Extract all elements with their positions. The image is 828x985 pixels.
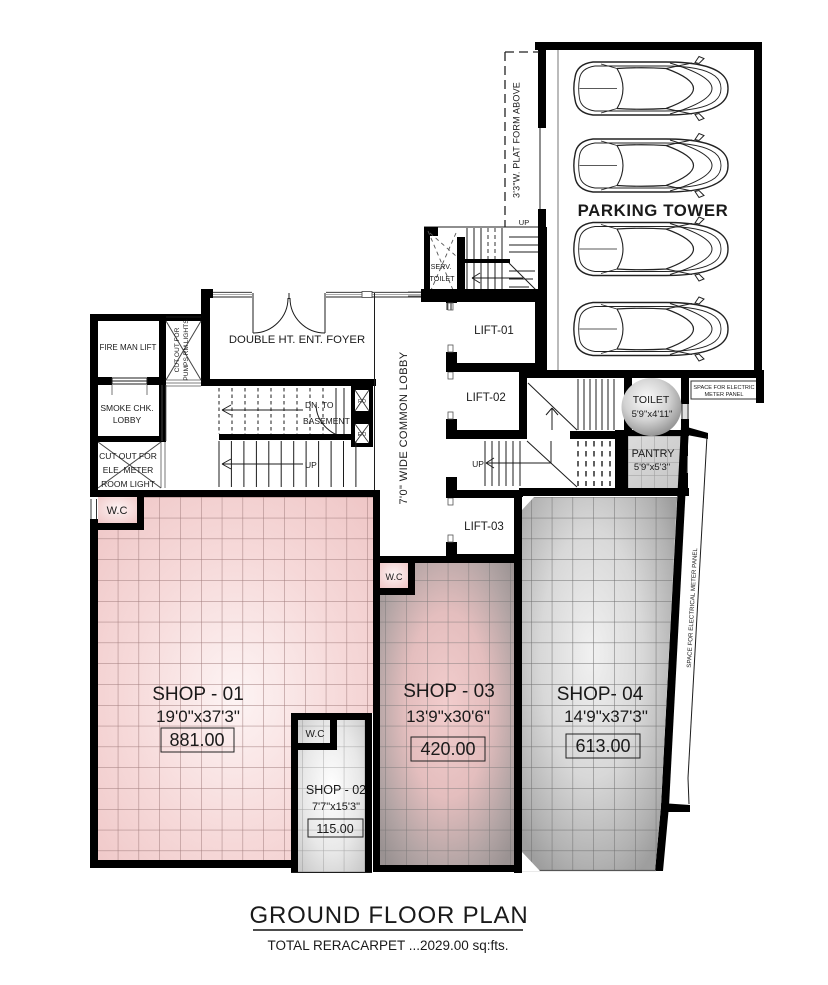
svg-text:FIRE MAN LIFT: FIRE MAN LIFT — [100, 343, 157, 352]
svg-text:DN. TO: DN. TO — [305, 400, 334, 410]
svg-text:UP: UP — [305, 460, 317, 470]
svg-text:ROOM LIGHT: ROOM LIGHT — [101, 479, 155, 489]
svg-text:14'9"x37'3": 14'9"x37'3" — [564, 707, 648, 726]
svg-text:ELE. METER: ELE. METER — [103, 465, 154, 475]
svg-text:5'9"x4'11": 5'9"x4'11" — [632, 409, 673, 420]
svg-text:7'0" WIDE COMMON LOBBY: 7'0" WIDE COMMON LOBBY — [398, 351, 410, 504]
svg-text:W.C: W.C — [386, 572, 403, 582]
svg-text:SHOP- 04: SHOP- 04 — [557, 684, 644, 705]
svg-text:19'0"x37'3": 19'0"x37'3" — [156, 707, 240, 726]
svg-text:SMOKE CHK.: SMOKE CHK. — [100, 403, 153, 413]
svg-text:5'9"x5'3": 5'9"x5'3" — [634, 462, 670, 473]
svg-text:PARKING TOWER: PARKING TOWER — [578, 201, 729, 220]
svg-text:LIFT-02: LIFT-02 — [466, 392, 506, 404]
svg-text:CUT OUT FOR: CUT OUT FOR — [174, 327, 181, 372]
svg-text:E.O: E.O — [358, 432, 367, 438]
svg-text:SERV.: SERV. — [431, 262, 452, 271]
svg-text:PUMPS RM LIGHTS: PUMPS RM LIGHTS — [183, 319, 190, 381]
svg-text:UP: UP — [519, 218, 529, 227]
svg-text:GROUND FLOOR PLAN: GROUND FLOOR PLAN — [250, 902, 529, 929]
svg-text:420.00: 420.00 — [420, 739, 475, 759]
svg-text:TOTAL RERACARPET ...2029.00 sq: TOTAL RERACARPET ...2029.00 sq:fts. — [267, 938, 508, 953]
svg-text:7'7"x15'3": 7'7"x15'3" — [312, 801, 360, 813]
svg-text:F.O: F.O — [358, 399, 366, 405]
svg-text:SHOP - 01: SHOP - 01 — [152, 684, 244, 705]
svg-text:115.00: 115.00 — [316, 822, 353, 836]
svg-text:SHOP - 03: SHOP - 03 — [403, 681, 495, 702]
svg-text:TOILET: TOILET — [633, 394, 670, 406]
svg-text:W.C: W.C — [107, 505, 128, 517]
svg-text:LIFT-01: LIFT-01 — [474, 325, 514, 337]
svg-text:TOILET: TOILET — [429, 274, 455, 283]
svg-text:3'3"W. PLAT FORM ABOVE: 3'3"W. PLAT FORM ABOVE — [512, 82, 522, 198]
svg-text:CUT OUT FOR: CUT OUT FOR — [99, 451, 157, 461]
svg-text:13'9"x30'6": 13'9"x30'6" — [406, 707, 490, 726]
svg-text:BASEMENT: BASEMENT — [303, 416, 350, 426]
svg-text:LOBBY: LOBBY — [113, 415, 142, 425]
svg-text:METER PANEL: METER PANEL — [704, 392, 743, 398]
svg-text:613.00: 613.00 — [575, 736, 630, 756]
svg-text:UP: UP — [472, 459, 484, 469]
svg-text:LIFT-03: LIFT-03 — [464, 521, 504, 533]
svg-text:881.00: 881.00 — [169, 730, 224, 750]
svg-text:SHOP - 02: SHOP - 02 — [306, 783, 366, 797]
svg-text:W.C: W.C — [306, 729, 325, 740]
svg-text:PANTRY: PANTRY — [632, 448, 675, 460]
svg-text:SPACE FOR ELECTRIC: SPACE FOR ELECTRIC — [693, 385, 754, 391]
svg-text:DOUBLE HT. ENT. FOYER: DOUBLE HT. ENT. FOYER — [229, 334, 365, 346]
